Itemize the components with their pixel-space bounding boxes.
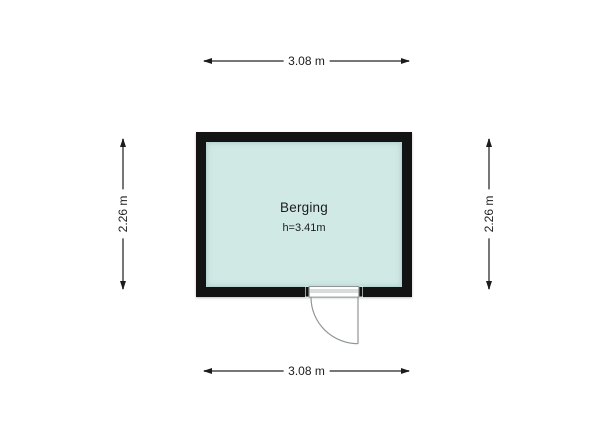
room-floor: Berging h=3.41m bbox=[206, 142, 402, 287]
dimension-label-top: 3.08 m bbox=[283, 54, 330, 68]
door-jamb-right bbox=[359, 287, 362, 297]
room-ceiling-height-label: h=3.41m bbox=[282, 222, 325, 234]
arrowhead-up-icon bbox=[120, 138, 126, 147]
dimension-label-bottom: 3.08 m bbox=[283, 364, 330, 378]
door bbox=[298, 280, 373, 350]
room-name-label: Berging bbox=[280, 200, 328, 215]
arrowhead-up-icon bbox=[486, 138, 492, 147]
arrowhead-left-icon bbox=[203, 368, 212, 374]
arrowhead-right-icon bbox=[401, 58, 410, 64]
dimension-bottom-width: 3.08 m bbox=[203, 363, 410, 379]
dimension-left-height: 2.26 m bbox=[115, 138, 131, 290]
dimension-label-right: 2.26 m bbox=[482, 190, 496, 239]
arrowhead-left-icon bbox=[203, 58, 212, 64]
floorplan-canvas: 3.08 m 3.08 m 2.26 m 2.26 m Berging h=3.… bbox=[0, 0, 608, 430]
dimension-right-height: 2.26 m bbox=[481, 138, 497, 290]
door-jamb-left bbox=[306, 287, 309, 297]
dimension-label-left: 2.26 m bbox=[116, 190, 130, 239]
dimension-top-width: 3.08 m bbox=[203, 53, 410, 69]
door-swing-arc bbox=[311, 297, 358, 344]
arrowhead-down-icon bbox=[120, 281, 126, 290]
arrowhead-right-icon bbox=[401, 368, 410, 374]
room-berging-walls: Berging h=3.41m bbox=[196, 132, 412, 297]
arrowhead-down-icon bbox=[486, 281, 492, 290]
